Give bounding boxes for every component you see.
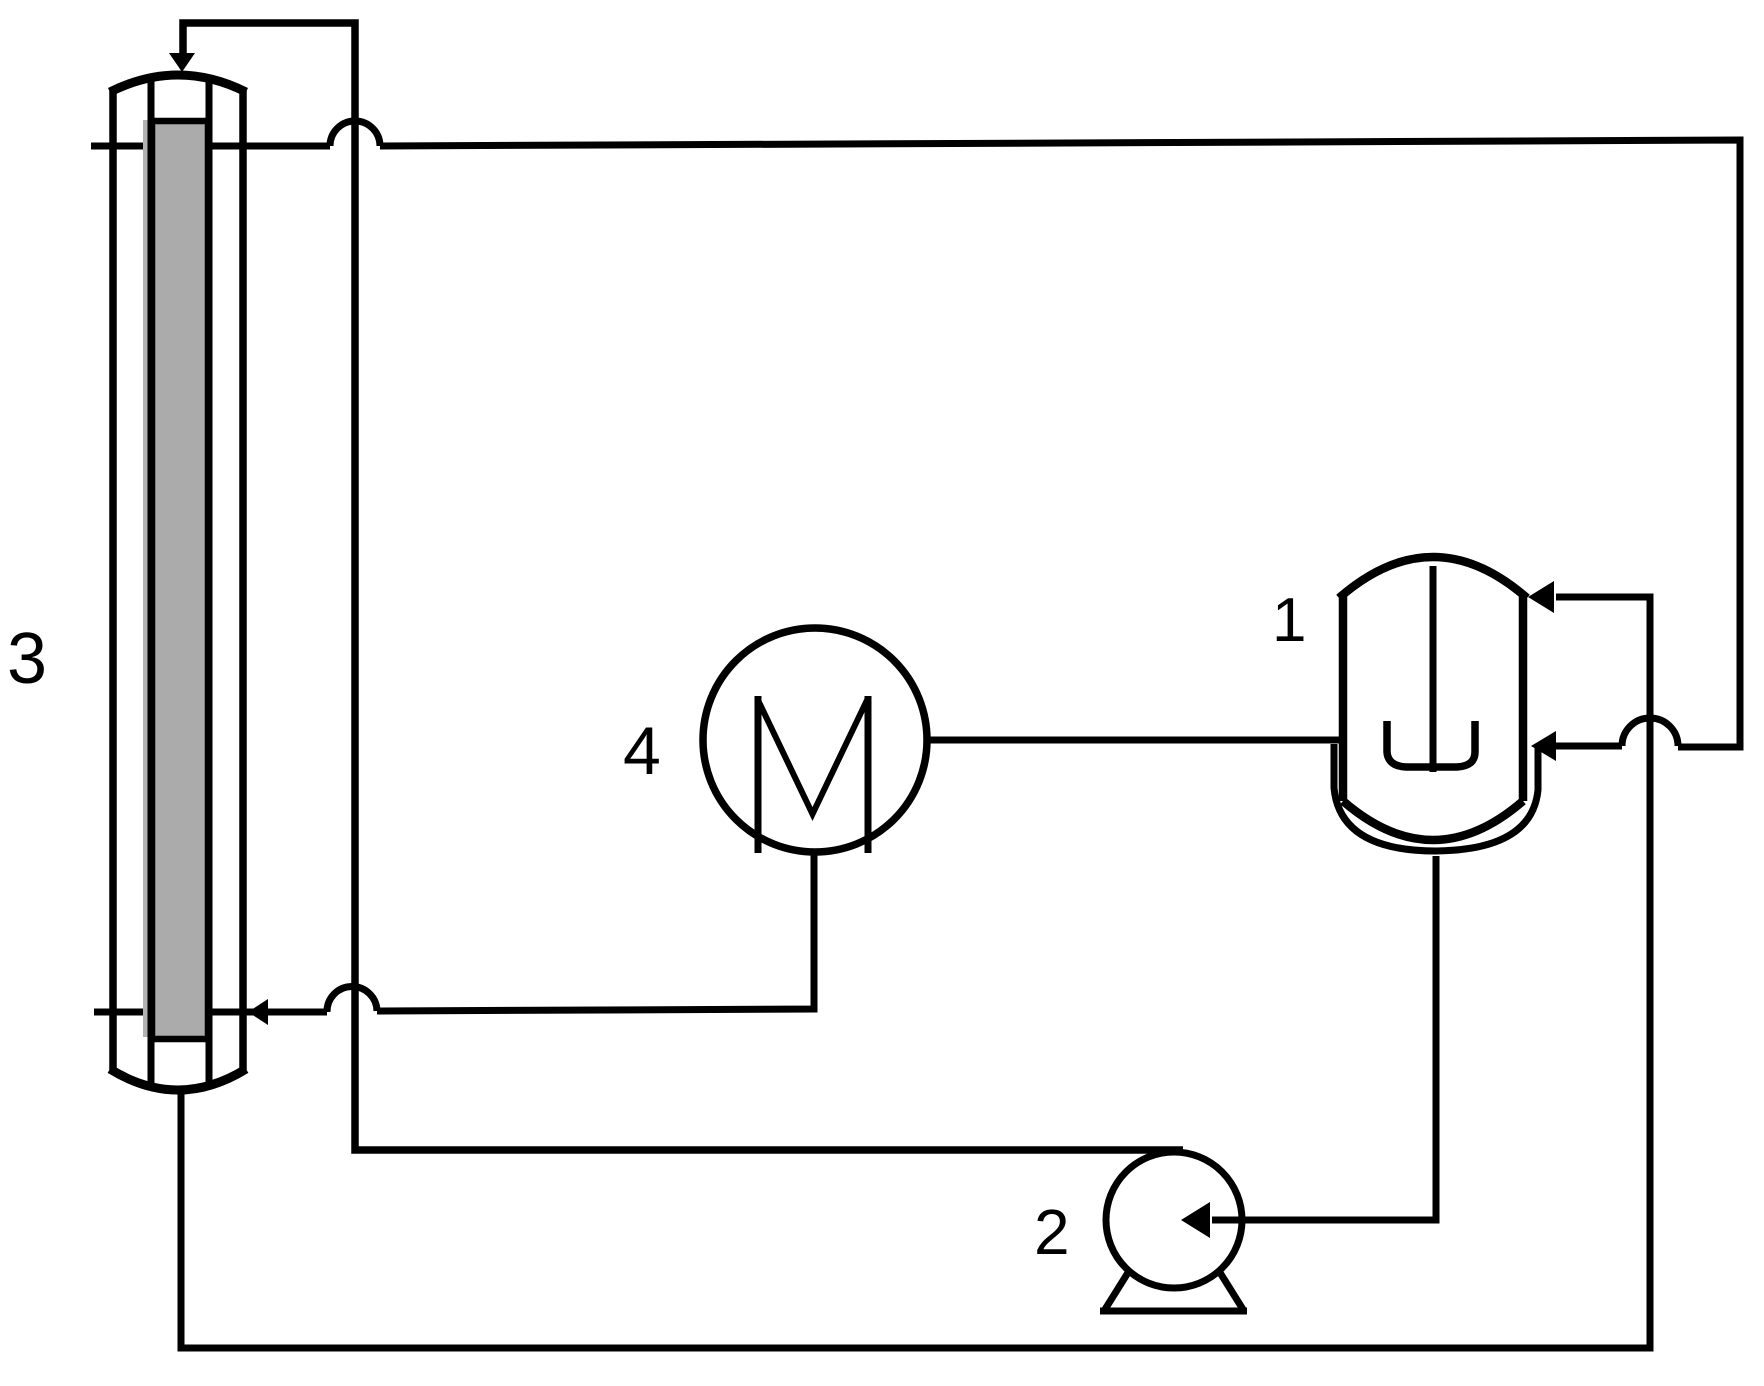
svg-text:1: 1 bbox=[1272, 586, 1306, 655]
svg-text:2: 2 bbox=[1034, 1196, 1070, 1268]
svg-text:4: 4 bbox=[623, 713, 661, 789]
svg-text:3: 3 bbox=[7, 619, 47, 699]
